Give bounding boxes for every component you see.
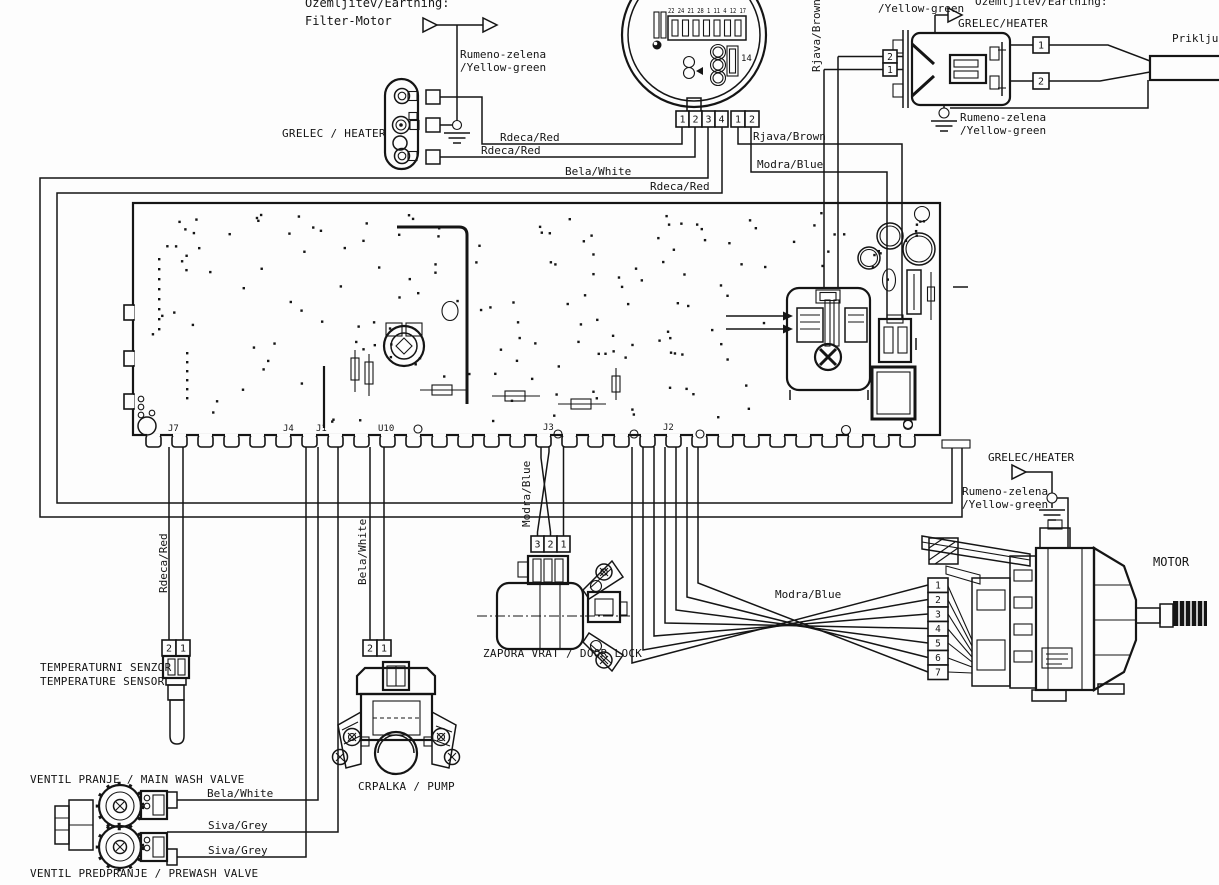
pcb-conn-u10: U10 bbox=[378, 424, 394, 434]
pcb-conn-j1: J1 bbox=[316, 424, 327, 434]
wire-label-yellow-green-1: Rumeno-zelena bbox=[460, 48, 546, 61]
terminal-number: 1 bbox=[381, 644, 387, 655]
pointer-icon bbox=[696, 67, 703, 75]
pcb-edge-tab bbox=[666, 435, 681, 447]
pcb-connector-mid bbox=[879, 315, 916, 362]
pcb-power-relay bbox=[787, 288, 870, 400]
pcb-edge-tab bbox=[770, 435, 785, 447]
pcb-edge-tab bbox=[640, 435, 655, 447]
terminal-number: 3 bbox=[935, 610, 941, 621]
ground-icon bbox=[444, 133, 470, 143]
pcb-edge-tab bbox=[328, 435, 343, 447]
earthing-title-clipped: Ozemljitev/Earthing: bbox=[975, 0, 1107, 8]
wire-label-blue: Modra/Blue bbox=[775, 588, 841, 601]
pcb-edge-tab bbox=[744, 435, 759, 447]
pcb-edge-tab bbox=[614, 435, 629, 447]
valve-coil-prewash bbox=[98, 825, 178, 870]
wire-label-brown: Rjava/Brown bbox=[753, 130, 826, 143]
motor-label: MOTOR bbox=[1153, 555, 1190, 569]
pcb-edge-tab bbox=[354, 435, 369, 447]
wire-label-yellow-green-1: Rumeno-zelena bbox=[960, 111, 1046, 124]
terminal-number: 2 bbox=[692, 115, 698, 126]
pcb-transformer bbox=[872, 367, 915, 430]
terminal-strip-pump: 21 bbox=[363, 640, 391, 656]
wire-rdeca-red-2 bbox=[440, 127, 695, 157]
pcb-edge-tab bbox=[588, 435, 603, 447]
pcb-conn-j7: J7 bbox=[168, 424, 179, 434]
pcb-edge-tab bbox=[562, 435, 577, 447]
ground-icon bbox=[931, 121, 957, 131]
wire-label-yellow-green-1: Rumeno-zelena bbox=[962, 485, 1048, 498]
heater-terminal-1 bbox=[426, 90, 440, 104]
power-cord-label: Priklju bbox=[1172, 32, 1218, 45]
pcb-edge-tab bbox=[900, 435, 915, 447]
wire-label-white: Bela/White bbox=[565, 165, 631, 178]
pcb-edge-tab bbox=[458, 435, 473, 447]
terminal-strip-b: 12 bbox=[731, 111, 759, 127]
earthing-title: Ozemljitev/Earthing: bbox=[305, 0, 450, 10]
terminal-number: 1 bbox=[887, 65, 893, 76]
terminal-number: 2 bbox=[749, 115, 755, 126]
terminal-strip-a: 1234 bbox=[676, 111, 728, 127]
terminal-number: 2 bbox=[1038, 77, 1044, 88]
pcb-edge-tab bbox=[224, 435, 239, 447]
terminal-number: 3 bbox=[534, 540, 540, 551]
pcb-edge-tab bbox=[198, 435, 213, 447]
wire-label-blue: Modra/Blue bbox=[757, 158, 823, 171]
wire-valve-white bbox=[177, 447, 318, 800]
temp-sensor-label-2: TEMPERATURE SENSOR bbox=[40, 675, 165, 688]
motor-drawing bbox=[922, 520, 1207, 701]
wiring-diagram: Ozemljitev/Earthing: Filter-Motor Rumeno… bbox=[0, 0, 1219, 885]
terminal-number: 1 bbox=[735, 115, 741, 126]
terminal-number: 2 bbox=[887, 52, 893, 63]
wire-label-brown-vertical: Rjava/Brown bbox=[810, 0, 823, 72]
earth-node bbox=[939, 108, 949, 118]
temp-sensor-label-1: TEMPERATURNI SENZOR bbox=[40, 661, 172, 674]
wire-label-yellow-green-clipped: /Yellow-green bbox=[878, 2, 964, 15]
pcb-edge-tab bbox=[432, 435, 447, 447]
pcb-edge-tab bbox=[172, 435, 187, 447]
pcb-edge-tab bbox=[796, 435, 811, 447]
wire-label-red: Rdeca/Red bbox=[500, 131, 560, 144]
prewash-valve-label: VENTIL PREDPRANJE / PREWASH VALVE bbox=[30, 867, 258, 880]
wire-label-blue-vertical: Modra/Blue bbox=[520, 461, 533, 527]
pcb-left-notches bbox=[124, 305, 134, 409]
earth-arrow-icon bbox=[1012, 465, 1026, 479]
main-valve-label: VENTIL PRANJE / MAIN WASH VALVE bbox=[30, 773, 245, 786]
terminal-number: 5 bbox=[935, 639, 941, 650]
earth-arrow-icon bbox=[483, 18, 497, 32]
pcb-edge-tab bbox=[380, 435, 395, 447]
terminal-number: 2 bbox=[935, 595, 941, 606]
motor-heater-ref-label: GRELEC/HEATER bbox=[988, 451, 1074, 464]
pressure-switch: 22 24 21 28 1 11 4 12 17 14 1234 12 Rjav… bbox=[622, 0, 902, 203]
terminal-strip-motor: 1234567 bbox=[928, 578, 948, 680]
terminal-number: 1 bbox=[679, 115, 685, 126]
wire-end-connector bbox=[942, 440, 970, 448]
wire-label-grey: Siva/Grey bbox=[208, 844, 268, 857]
ground-icon bbox=[1039, 510, 1065, 520]
heater-left-label: GRELEC / HEATER bbox=[282, 127, 386, 140]
terminal-number: 3 bbox=[705, 115, 711, 126]
terminal-number: 1 bbox=[560, 540, 566, 551]
pin-14-label: 14 bbox=[741, 54, 752, 64]
pcb-edge-tab bbox=[484, 435, 499, 447]
terminal-number: 1 bbox=[1038, 41, 1044, 52]
pcb-solder-dots bbox=[152, 212, 925, 423]
temperature-sensor: 21 TEMPERATURNI SENZOR TEMPERATURE SENSO… bbox=[40, 447, 190, 744]
pcb-edge-tabs bbox=[146, 435, 915, 447]
terminal-strip-door: 321 bbox=[531, 536, 570, 552]
pcb-edge-tab bbox=[510, 435, 525, 447]
pcb-mount-hole bbox=[138, 417, 156, 435]
terminal-strip-heater-left: 21 bbox=[883, 50, 897, 76]
heater-top-right-label: GRELEC/HEATER bbox=[958, 17, 1048, 30]
pcb-edge-tab bbox=[276, 435, 291, 447]
door-lock: Modra/Blue 321 ZAPORA VRAT / DOOR LOCK bbox=[477, 447, 642, 671]
earth-node bbox=[453, 121, 462, 130]
pump-label: CRPALKA / PUMP bbox=[358, 780, 455, 793]
wire-label-red: Rdeca/Red bbox=[481, 144, 541, 157]
pcb-edge-tab bbox=[536, 435, 551, 447]
pcb-edge-tab bbox=[302, 435, 317, 447]
wire-label-yellow-green-2: /Yellow-green bbox=[962, 498, 1048, 511]
contact-num-row: 22 24 21 28 1 11 4 12 17 bbox=[668, 7, 746, 15]
heater-terminal-3 bbox=[426, 150, 440, 164]
pcb-conn-j4: J4 bbox=[283, 424, 294, 434]
heater-terminal-2 bbox=[426, 118, 440, 132]
power-cord bbox=[1150, 56, 1219, 80]
valve-coil-main bbox=[98, 784, 178, 829]
pcb-edge-tab bbox=[406, 435, 421, 447]
door-lock-label: ZAPORA VRAT / DOOR LOCK bbox=[483, 647, 642, 660]
pcb-board: J7 J4 J1 U10 J3 J2 bbox=[124, 203, 968, 447]
motor: Modra/Blue 1234567 GRELEC/HEATER Rumeno-… bbox=[632, 447, 1207, 701]
terminal-number: 1 bbox=[180, 644, 186, 655]
earth-node bbox=[1047, 493, 1057, 503]
sensor-probe bbox=[170, 700, 184, 744]
wire-label-yellow-green-2: /Yellow-green bbox=[460, 61, 546, 74]
pcb-edge-tab bbox=[874, 435, 889, 447]
pcb-edge-tab bbox=[146, 435, 161, 447]
wire-label-red: Rdeca/Red bbox=[650, 180, 710, 193]
terminal-number: 7 bbox=[935, 668, 941, 679]
earthing-subtitle: Filter-Motor bbox=[305, 14, 392, 28]
terminal-number: 4 bbox=[718, 115, 724, 126]
earth-arrow-icon bbox=[423, 18, 437, 32]
terminal-number: 2 bbox=[367, 644, 373, 655]
terminal-number: 6 bbox=[935, 653, 941, 664]
terminal-number: 2 bbox=[166, 644, 172, 655]
pcb-conn-j2: J2 bbox=[663, 423, 674, 433]
wire-label-red-vertical: Rdeca/Red bbox=[157, 533, 170, 593]
pcb-edge-tab bbox=[250, 435, 265, 447]
pcb-outline bbox=[133, 203, 940, 435]
terminal-number: 2 bbox=[547, 540, 553, 551]
wire-label-yellow-green-2: /Yellow-green bbox=[960, 124, 1046, 137]
pump: 21 Bela/White CRPALKA / PUMP bbox=[333, 447, 460, 793]
terminal-strip-temp: 21 bbox=[162, 640, 190, 656]
pcb-edge-tab bbox=[692, 435, 707, 447]
wire-label-white-vertical: Bela/White bbox=[356, 519, 369, 585]
terminal-number: 1 bbox=[935, 581, 941, 592]
heater-connector-body bbox=[912, 33, 1010, 105]
pcb-edge-tab bbox=[848, 435, 863, 447]
motor-shaft-thread bbox=[1173, 601, 1207, 626]
wire-label-grey: Siva/Grey bbox=[208, 819, 268, 832]
terminal-strip-heater-right: 12 bbox=[1033, 37, 1049, 89]
pcb-conn-j3: J3 bbox=[543, 423, 554, 433]
wire-label-white: Bela/White bbox=[207, 787, 273, 800]
heater-left: GRELEC / HEATER Rdeca/Red Rdeca/Red bbox=[282, 79, 695, 169]
wire-rdeca-red-1 bbox=[440, 97, 682, 144]
pcb-edge-tab bbox=[718, 435, 733, 447]
terminal-number: 4 bbox=[935, 624, 941, 635]
pcb-edge-tab bbox=[822, 435, 837, 447]
